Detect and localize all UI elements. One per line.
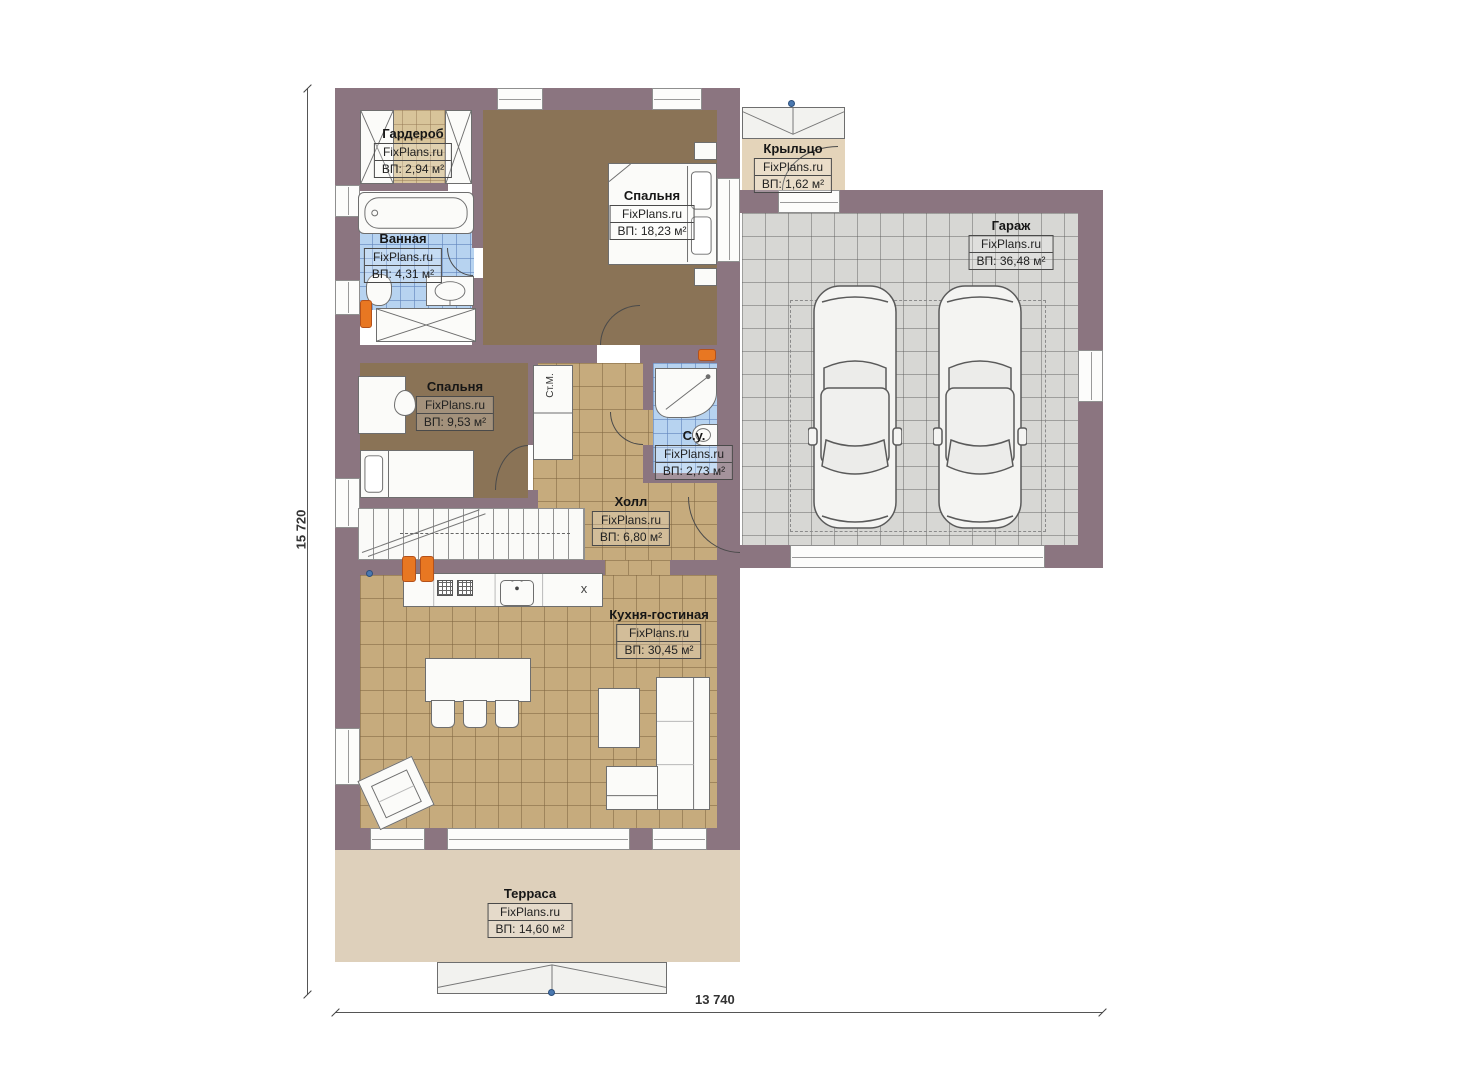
hall-kitchen-passage bbox=[605, 560, 670, 576]
garage-door bbox=[790, 545, 1045, 568]
dimension-label-height: 15 720 bbox=[293, 510, 308, 550]
chair bbox=[394, 390, 416, 416]
chair bbox=[431, 700, 455, 728]
room-label-wc: С.у. FixPlans.ruВП: 2,73 м² bbox=[655, 428, 733, 480]
window bbox=[335, 478, 360, 528]
radiator-icon bbox=[698, 349, 716, 361]
window bbox=[652, 828, 707, 850]
wall bbox=[360, 498, 538, 508]
window bbox=[370, 828, 425, 850]
room-brand: FixPlans.ru bbox=[375, 144, 451, 161]
sofa bbox=[656, 677, 710, 810]
room-name: Ванная bbox=[364, 231, 442, 246]
room-brand: FixPlans.ru bbox=[417, 397, 493, 414]
bed bbox=[360, 450, 474, 498]
room-label-bedroom2: Спальня FixPlans.ruВП: 9,53 м² bbox=[416, 379, 494, 431]
coffee-table bbox=[598, 688, 640, 748]
chair bbox=[463, 700, 487, 728]
window bbox=[717, 178, 740, 262]
room-brand: FixPlans.ru bbox=[656, 446, 732, 463]
nightstand bbox=[694, 268, 717, 286]
radiator-icon bbox=[360, 300, 372, 328]
room-label-porch: Крыльцо FixPlans.ruВП: 1,62 м² bbox=[754, 141, 832, 193]
dishwasher-icon: x bbox=[570, 581, 598, 596]
room-name: Холл bbox=[592, 494, 670, 509]
wall bbox=[360, 183, 448, 191]
wall bbox=[670, 560, 717, 575]
room-label-garage: Гараж FixPlans.ruВП: 36,48 м² bbox=[969, 218, 1054, 270]
room-brand: FixPlans.ru bbox=[593, 512, 669, 529]
radiator-icon bbox=[402, 556, 416, 582]
room-label-bedroom1: Спальня FixPlans.ruВП: 18,23 м² bbox=[610, 188, 695, 240]
room-area: ВП: 30,45 м² bbox=[618, 642, 701, 658]
window bbox=[335, 185, 360, 217]
stove-icon bbox=[457, 580, 473, 596]
room-name: Гараж bbox=[969, 218, 1054, 233]
dimension-line-bottom bbox=[335, 1012, 1103, 1013]
room-brand: FixPlans.ru bbox=[755, 159, 831, 176]
room-brand: FixPlans.ru bbox=[365, 249, 441, 266]
room-label-hall: Холл FixPlans.ruВП: 6,80 м² bbox=[592, 494, 670, 546]
room-name: Спальня bbox=[416, 379, 494, 394]
room-brand: FixPlans.ru bbox=[611, 206, 694, 223]
floor-plan: Ст.М. x bbox=[0, 0, 1474, 1080]
reference-point bbox=[788, 100, 795, 107]
room-brand: FixPlans.ru bbox=[489, 904, 572, 921]
room-area: ВП: 2,94 м² bbox=[375, 161, 451, 177]
stove-icon bbox=[437, 580, 453, 596]
room-brand: FixPlans.ru bbox=[970, 236, 1053, 253]
chair bbox=[495, 700, 519, 728]
room-area: ВП: 6,80 м² bbox=[593, 529, 669, 545]
room-name: Кухня-гостиная bbox=[609, 607, 709, 622]
porch-steps bbox=[742, 107, 845, 139]
entrance-door bbox=[778, 190, 840, 213]
wall bbox=[360, 345, 597, 363]
washing-machine-label: Ст.М. bbox=[545, 373, 556, 398]
reference-point bbox=[548, 989, 555, 996]
window bbox=[335, 728, 360, 785]
nightstand bbox=[694, 142, 717, 160]
stair-direction-line bbox=[400, 533, 570, 534]
room-area: ВП: 36,48 м² bbox=[970, 253, 1053, 269]
kitchen-sink-icon bbox=[500, 580, 534, 606]
room-name: Крыльцо bbox=[754, 141, 832, 156]
shower bbox=[655, 368, 717, 418]
room-area: ВП: 2,73 м² bbox=[656, 463, 732, 479]
staircase bbox=[358, 508, 585, 560]
window bbox=[1078, 350, 1103, 402]
car-icon bbox=[808, 282, 902, 532]
window bbox=[335, 280, 360, 315]
room-area: ВП: 1,62 м² bbox=[755, 176, 831, 192]
room-label-terrace: Терраса FixPlans.ruВП: 14,60 м² bbox=[488, 886, 573, 938]
reference-point bbox=[366, 570, 373, 577]
room-name: Гардероб bbox=[374, 126, 452, 141]
room-label-wardrobe: Гардероб FixPlans.ruВП: 2,94 м² bbox=[374, 126, 452, 178]
sofa bbox=[606, 766, 658, 810]
room-area: ВП: 4,31 м² bbox=[365, 266, 441, 282]
room-name: Терраса bbox=[488, 886, 573, 901]
room-label-kitchen: Кухня-гостиная FixPlans.ruВП: 30,45 м² bbox=[609, 607, 709, 659]
room-name: С.у. bbox=[655, 428, 733, 443]
wall bbox=[643, 363, 653, 410]
dining-table bbox=[425, 658, 531, 702]
dimension-label-width: 13 740 bbox=[695, 992, 735, 1007]
room-brand: FixPlans.ru bbox=[618, 625, 701, 642]
linen-cabinet bbox=[376, 308, 476, 342]
radiator-icon bbox=[420, 556, 434, 582]
window bbox=[497, 88, 543, 110]
window bbox=[652, 88, 702, 110]
room-area: ВП: 9,53 м² bbox=[417, 414, 493, 430]
room-area: ВП: 14,60 м² bbox=[489, 921, 572, 937]
room-name: Спальня bbox=[610, 188, 695, 203]
terrace-glass-door bbox=[447, 828, 630, 850]
room-area: ВП: 18,23 м² bbox=[611, 223, 694, 239]
bathtub bbox=[358, 192, 474, 234]
room-label-bathroom: Ванная FixPlans.ruВП: 4,31 м² bbox=[364, 231, 442, 283]
car-icon bbox=[933, 282, 1027, 532]
